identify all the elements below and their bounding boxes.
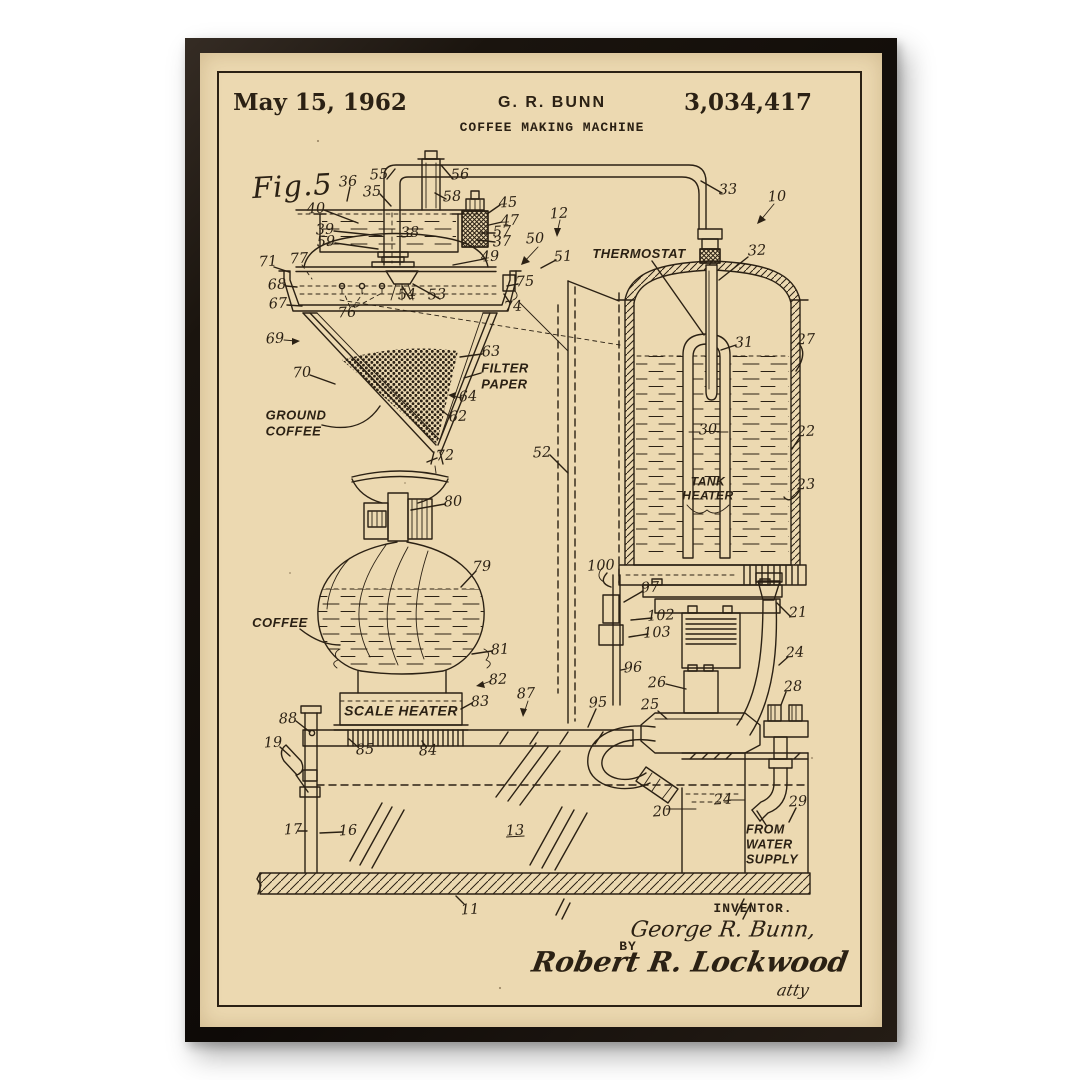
ref-number-36: 36 bbox=[338, 174, 357, 191]
ref-number-26: 26 bbox=[647, 675, 666, 692]
ref-number-20: 20 bbox=[652, 804, 671, 821]
ref-number-82: 82 bbox=[488, 672, 507, 689]
ref-number-13: 13 bbox=[505, 823, 524, 840]
ref-number-24: 24 bbox=[713, 792, 732, 809]
ref-number-102: 102 bbox=[647, 607, 675, 624]
patent-drawing: 3655563558454757374039593812505149331032… bbox=[200, 53, 882, 1027]
ref-number-77: 77 bbox=[289, 251, 308, 268]
ref-number-35: 35 bbox=[362, 184, 381, 201]
ref-number-85: 85 bbox=[355, 742, 374, 759]
callout-scale-heater: SCALE HEATER bbox=[344, 703, 458, 720]
ref-number-71: 71 bbox=[258, 254, 277, 271]
ref-number-62: 62 bbox=[448, 409, 467, 426]
ref-number-69: 69 bbox=[265, 331, 284, 348]
ref-number-72: 72 bbox=[435, 448, 454, 465]
ref-number-33: 33 bbox=[718, 182, 737, 199]
ref-number-100: 100 bbox=[587, 557, 615, 574]
ref-number-17: 17 bbox=[283, 822, 302, 839]
callout-from-water-supply: FROM WATER SUPPLY bbox=[746, 823, 798, 868]
ref-number-103: 103 bbox=[643, 624, 671, 641]
ref-number-84: 84 bbox=[418, 743, 437, 760]
ref-number-59: 59 bbox=[316, 234, 335, 251]
ref-number-28: 28 bbox=[783, 679, 802, 696]
ref-number-11: 11 bbox=[460, 902, 479, 919]
ref-number-54: 54 bbox=[397, 287, 416, 304]
ref-number-76: 76 bbox=[337, 305, 356, 322]
callout-filter-paper: FILTER PAPER bbox=[481, 360, 529, 391]
ref-number-68: 68 bbox=[267, 277, 286, 294]
ref-number-75: 75 bbox=[515, 274, 534, 291]
ref-number-22: 22 bbox=[796, 424, 815, 441]
ref-number-58: 58 bbox=[442, 189, 461, 206]
ref-number-51: 51 bbox=[553, 249, 572, 266]
callout-thermostat: THERMOSTAT bbox=[592, 246, 685, 262]
poster-frame: May 15, 1962 G. R. BUNN 3,034,417 COFFEE… bbox=[185, 38, 897, 1042]
ref-number-40: 40 bbox=[306, 201, 325, 218]
ref-number-50: 50 bbox=[525, 231, 544, 248]
ref-number-74: 74 bbox=[503, 299, 522, 316]
inventor-signature: George R. Bunn, bbox=[629, 918, 817, 943]
ref-number-27: 27 bbox=[796, 332, 815, 349]
ref-number-38: 38 bbox=[400, 225, 419, 242]
ref-number-83: 83 bbox=[470, 694, 489, 711]
ref-number-30: 30 bbox=[698, 422, 717, 439]
ref-number-25: 25 bbox=[640, 697, 659, 714]
ref-number-64: 64 bbox=[458, 389, 477, 406]
ref-number-88: 88 bbox=[278, 711, 297, 728]
ref-number-16: 16 bbox=[338, 823, 357, 840]
attorney-note: atty bbox=[775, 981, 810, 1000]
ref-number-24: 24 bbox=[785, 645, 804, 662]
ref-number-70: 70 bbox=[292, 365, 311, 382]
ref-number-81: 81 bbox=[490, 642, 509, 659]
ref-number-80: 80 bbox=[443, 494, 462, 511]
attorney-signature: Robert R. Lockwood bbox=[529, 946, 850, 979]
ref-number-56: 56 bbox=[450, 167, 469, 184]
ref-number-95: 95 bbox=[588, 695, 607, 712]
ref-number-29: 29 bbox=[788, 794, 807, 811]
ref-number-10: 10 bbox=[767, 189, 786, 206]
ref-number-23: 23 bbox=[796, 477, 815, 494]
ref-number-49: 49 bbox=[480, 249, 499, 266]
ref-number-19: 19 bbox=[263, 735, 282, 752]
ref-number-96: 96 bbox=[623, 660, 642, 677]
ref-number-67: 67 bbox=[268, 296, 287, 313]
ref-number-12: 12 bbox=[549, 206, 568, 223]
callout-tank-heater: TANK HEATER bbox=[682, 475, 733, 504]
ref-number-52: 52 bbox=[532, 445, 551, 462]
ref-number-63: 63 bbox=[481, 344, 500, 361]
patent-paper: May 15, 1962 G. R. BUNN 3,034,417 COFFEE… bbox=[200, 53, 882, 1027]
ref-number-97: 97 bbox=[640, 580, 659, 597]
annotation-layer: 3655563558454757374039593812505149331032… bbox=[200, 53, 882, 1027]
ref-number-87: 87 bbox=[516, 686, 535, 703]
ref-number-32: 32 bbox=[747, 243, 766, 260]
ref-number-21: 21 bbox=[788, 605, 807, 622]
inventor-caption: INVENTOR. bbox=[713, 901, 792, 916]
ref-number-45: 45 bbox=[498, 195, 517, 212]
ref-number-31: 31 bbox=[734, 335, 753, 352]
ref-number-79: 79 bbox=[472, 559, 491, 576]
callout-ground-coffee: GROUND COFFEE bbox=[266, 407, 327, 438]
ref-number-53: 53 bbox=[427, 287, 446, 304]
callout-coffee: COFFEE bbox=[252, 615, 308, 631]
ref-number-55: 55 bbox=[369, 167, 388, 184]
